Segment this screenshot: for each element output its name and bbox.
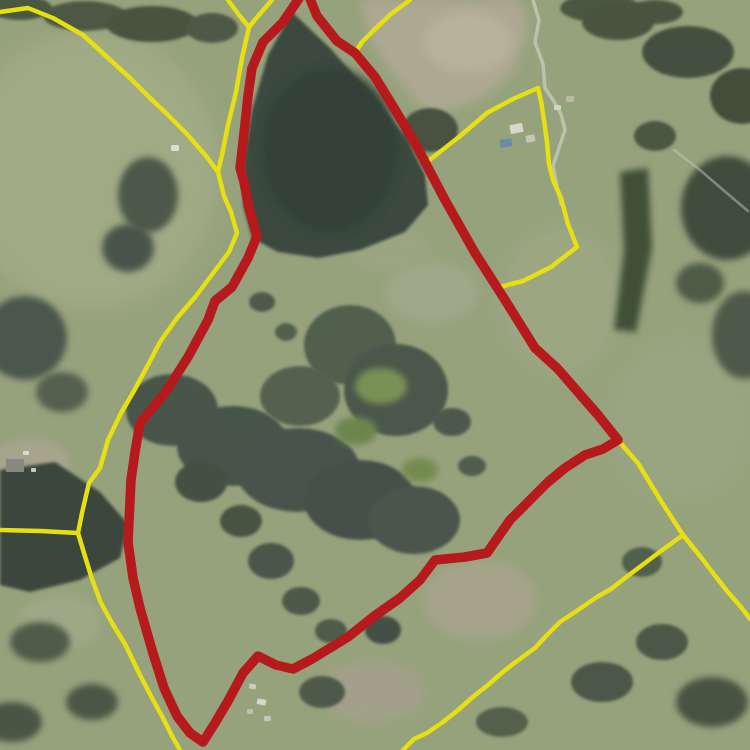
aerial-map[interactable] [0,0,750,750]
map-canvas [0,0,750,750]
photo-grain-overlay [0,0,750,750]
